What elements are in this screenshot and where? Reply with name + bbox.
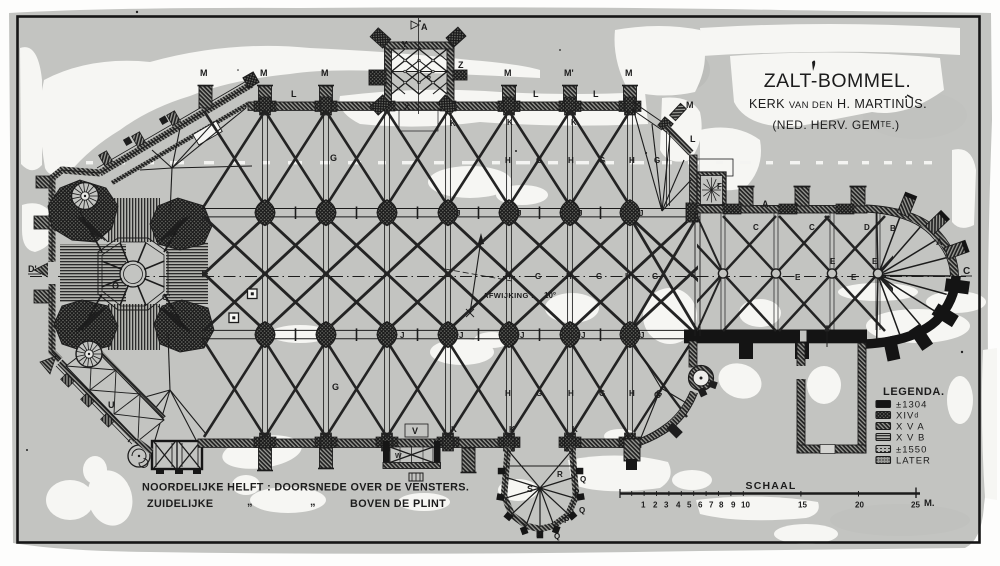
svg-text:J: J	[456, 209, 460, 218]
svg-text:D: D	[864, 223, 870, 232]
svg-text:E: E	[795, 273, 801, 282]
svg-text:C: C	[809, 223, 815, 232]
svg-text:K: K	[571, 118, 577, 127]
svg-text:LEGENDA.: LEGENDA.	[883, 386, 945, 398]
svg-text:J: J	[400, 331, 404, 340]
svg-text:K: K	[450, 119, 456, 128]
svg-text:X V A: X V A	[896, 422, 925, 433]
svg-text:G: G	[332, 382, 339, 392]
svg-text:M.: M.	[924, 498, 935, 509]
svg-text:A: A	[936, 237, 943, 247]
svg-text:M: M	[625, 68, 633, 78]
svg-text:G: G	[536, 156, 542, 165]
svg-text:O: O	[112, 281, 119, 291]
svg-text:A: A	[421, 22, 428, 32]
svg-text:M': M'	[564, 68, 574, 78]
svg-text:G: G	[330, 153, 337, 163]
svg-text:AFWIJKING :: AFWIJKING :	[483, 291, 534, 300]
svg-text:F: F	[717, 182, 722, 191]
svg-text:H: H	[629, 389, 635, 398]
svg-text:J: J	[578, 209, 582, 218]
svg-text:J: J	[459, 331, 463, 340]
svg-text:G: G	[652, 272, 658, 281]
svg-text:ZALT-BOMMEL.: ZALT-BOMMEL.	[764, 70, 912, 92]
svg-text:C: C	[753, 223, 759, 232]
svg-text:Y: Y	[402, 40, 408, 49]
svg-text:G: G	[654, 390, 661, 400]
svg-text:P: P	[574, 488, 580, 497]
svg-text:25: 25	[911, 501, 920, 510]
svg-text:H: H	[568, 389, 574, 398]
svg-text:M: M	[504, 68, 512, 78]
svg-text:Q: Q	[580, 475, 586, 484]
svg-text:ZUIDELIJKE: ZUIDELIJKE	[147, 498, 214, 510]
svg-text:Q: Q	[579, 506, 585, 515]
svg-text:Z: Z	[458, 60, 464, 70]
svg-text:20: 20	[855, 501, 864, 510]
svg-text:G: G	[535, 272, 541, 281]
svg-text:B: B	[890, 224, 896, 233]
svg-text:E: E	[851, 273, 857, 282]
svg-text:H: H	[566, 272, 572, 281]
svg-text:G: G	[654, 156, 660, 165]
svg-text:10: 10	[741, 501, 750, 510]
svg-text:J: J	[640, 331, 644, 340]
svg-text:G': G'	[162, 293, 170, 302]
svg-text:1: 1	[641, 501, 646, 510]
svg-text:J: J	[581, 331, 585, 340]
svg-text:H: H	[505, 389, 511, 398]
svg-text:2: 2	[653, 501, 658, 510]
svg-text:±1304: ±1304	[896, 400, 927, 411]
svg-text:„: „	[247, 496, 253, 508]
svg-text:Q: Q	[554, 532, 560, 541]
svg-text:KERK VAN DEN H. MARTINUS.: KERK VAN DEN H. MARTINUS.	[749, 97, 927, 111]
svg-text:L: L	[593, 89, 599, 99]
svg-text:K: K	[509, 425, 515, 434]
svg-text:G: G	[599, 156, 605, 165]
svg-text:H: H	[568, 156, 574, 165]
svg-text:M: M	[686, 100, 694, 110]
svg-text:BOVEN DE PLINT: BOVEN DE PLINT	[350, 498, 446, 510]
svg-text:K: K	[451, 425, 457, 434]
svg-text:W: W	[395, 453, 402, 460]
svg-text:6: 6	[427, 74, 431, 81]
svg-text:„: „	[310, 496, 316, 508]
svg-text:4: 4	[676, 501, 681, 510]
svg-text:M: M	[321, 68, 329, 78]
svg-text:J: J	[639, 209, 643, 218]
svg-text:L: L	[291, 89, 297, 99]
svg-text:L: L	[690, 134, 696, 144]
svg-text:U: U	[108, 400, 115, 410]
svg-text:M: M	[260, 68, 268, 78]
svg-text:S: S	[527, 484, 533, 494]
svg-text:V: V	[412, 426, 418, 436]
svg-text:15: 15	[798, 501, 807, 510]
svg-text:J: J	[517, 209, 521, 218]
svg-text:SCHAAL: SCHAAL	[746, 480, 797, 492]
svg-text:G: G	[599, 389, 605, 398]
svg-text:P: P	[536, 530, 542, 539]
svg-text:H: H	[629, 156, 635, 165]
svg-text:5: 5	[687, 501, 692, 510]
svg-text:E: E	[830, 257, 836, 266]
svg-text:3: 3	[664, 501, 669, 510]
svg-text:P: P	[564, 516, 570, 525]
svg-text:±1550: ±1550	[896, 445, 927, 456]
svg-text:H: H	[505, 272, 511, 281]
svg-text:C: C	[963, 266, 970, 277]
svg-text:M: M	[200, 68, 208, 78]
svg-text:10°: 10°	[544, 291, 556, 300]
svg-text:7: 7	[709, 501, 714, 510]
svg-text:R: R	[557, 470, 563, 479]
svg-text:G: G	[596, 272, 602, 281]
svg-text:H: H	[625, 272, 631, 281]
svg-text:G: G	[536, 389, 542, 398]
svg-text:K: K	[572, 425, 578, 434]
svg-text:H: H	[505, 156, 511, 165]
svg-text:L: L	[533, 89, 539, 99]
svg-text:X: X	[404, 102, 410, 112]
svg-text:A: A	[762, 199, 769, 209]
svg-text:E: E	[872, 257, 878, 266]
svg-text:6: 6	[698, 501, 703, 510]
svg-text:9: 9	[731, 501, 736, 510]
svg-text:K: K	[507, 118, 513, 127]
svg-text:8: 8	[719, 501, 724, 510]
svg-text:J: J	[520, 331, 524, 340]
svg-text:X V B: X V B	[896, 433, 925, 444]
svg-text:LATER: LATER	[896, 456, 931, 467]
svg-text:NOORDELIJKE HELFT : DOORSNEDE: NOORDELIJKE HELFT : DOORSNEDE OVER DE VE…	[142, 482, 469, 494]
